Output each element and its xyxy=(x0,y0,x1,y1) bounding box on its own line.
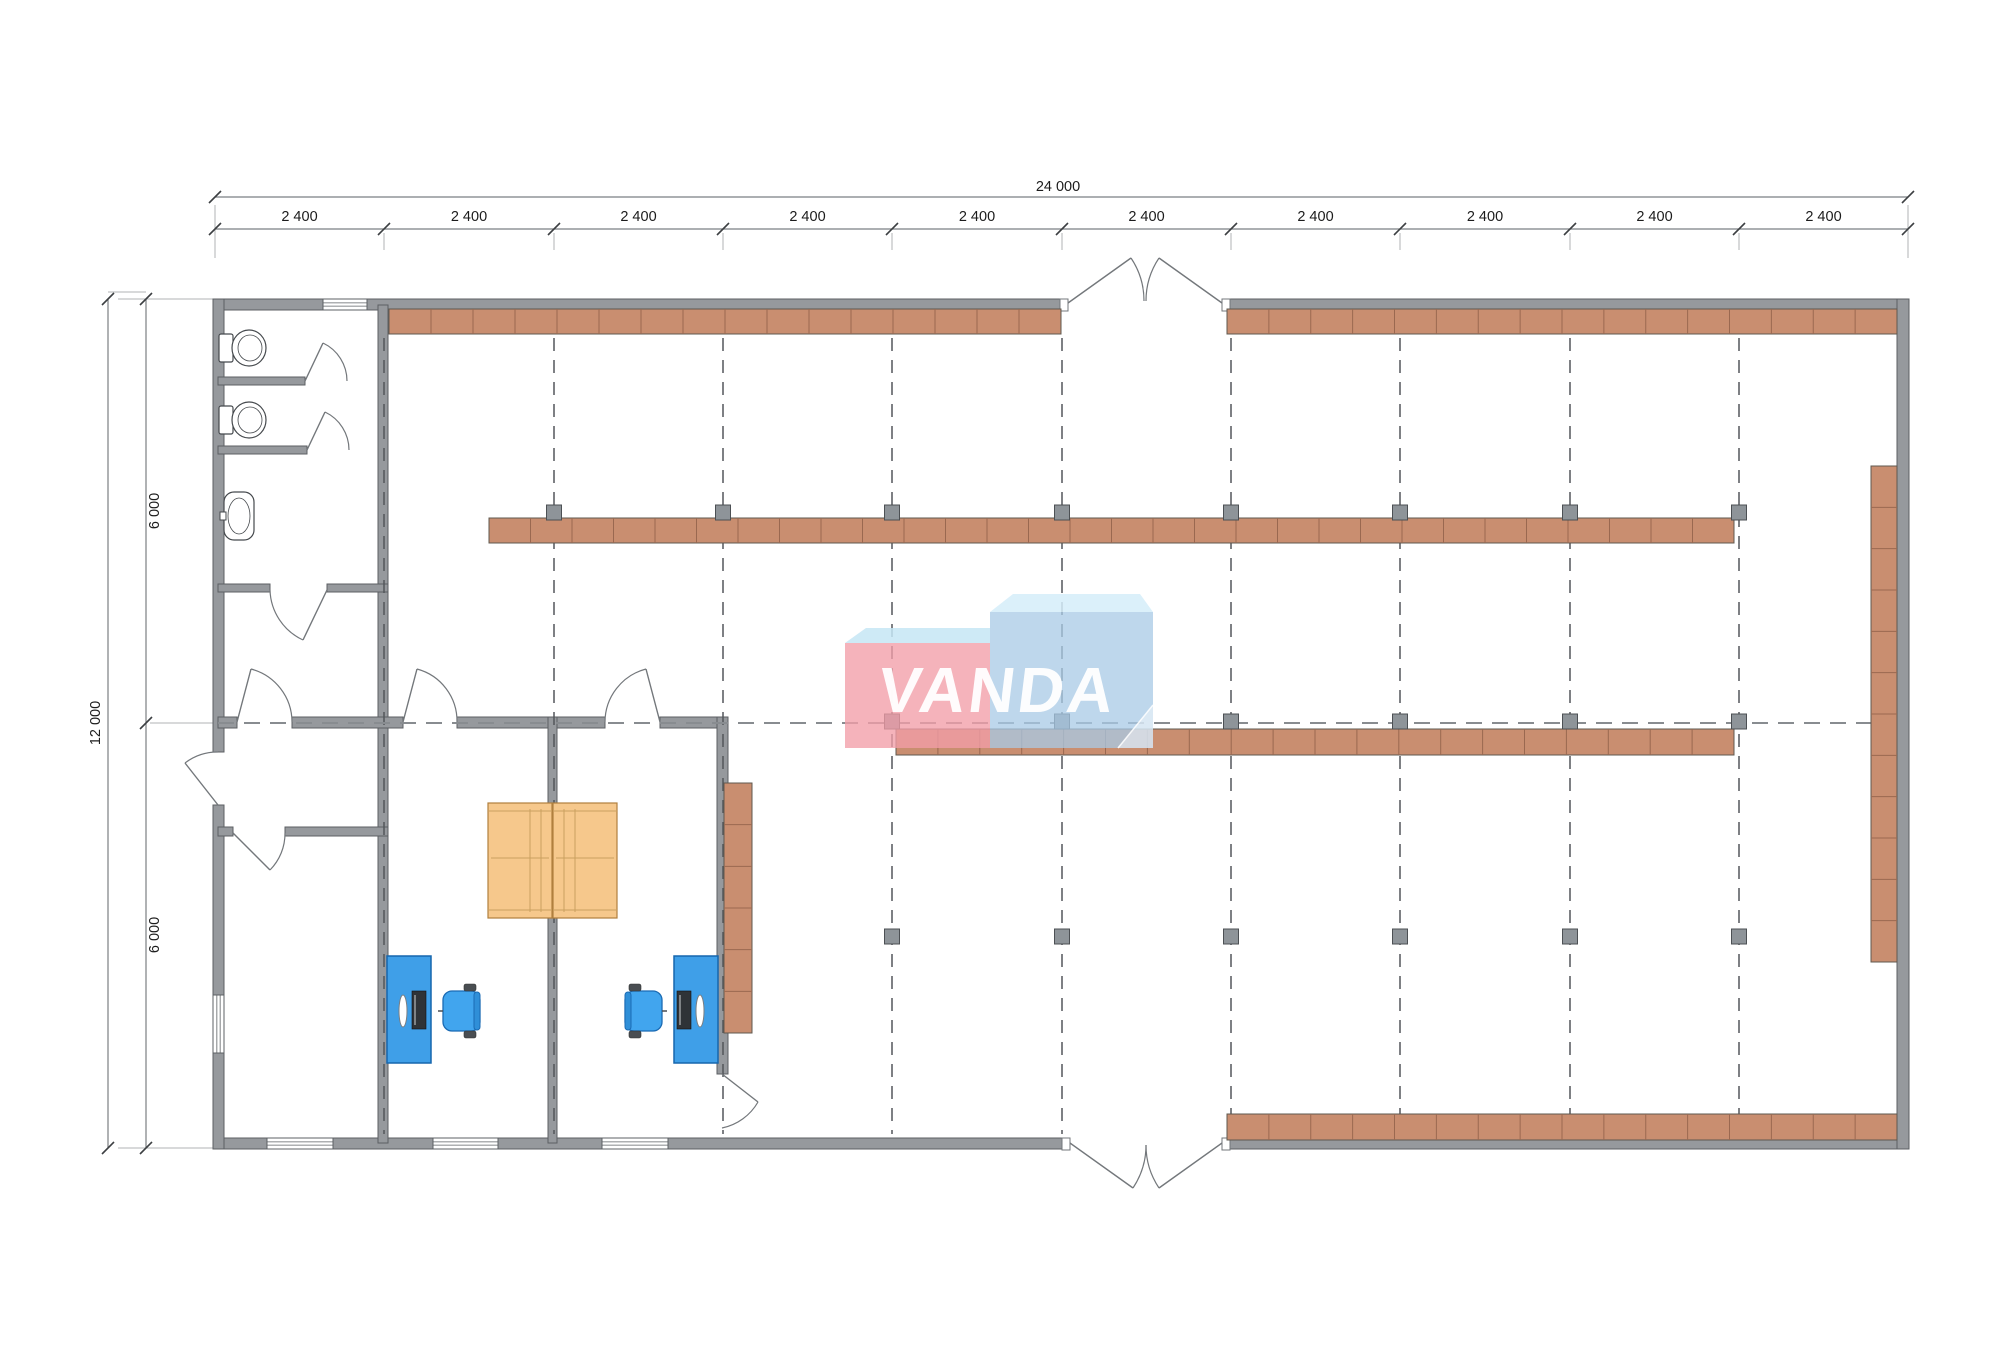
wall xyxy=(327,584,388,592)
dim-label-segment-v: 6 000 xyxy=(147,917,163,953)
column-marker xyxy=(1224,714,1239,729)
wall xyxy=(285,827,388,836)
dim-label-segment: 2 400 xyxy=(1636,209,1672,225)
office-left-door-leaf xyxy=(403,669,417,722)
wall xyxy=(213,805,224,1149)
door-jamb xyxy=(1062,1138,1070,1150)
side-entrance-door-leaf xyxy=(185,763,218,805)
top-entrance-right-swing xyxy=(1146,258,1159,301)
bottom-entrance-right-swing xyxy=(1146,1145,1159,1188)
bottom-entrance-left-swing xyxy=(1133,1145,1146,1188)
bathroom-door-leaf xyxy=(303,590,327,640)
top-entrance-left-leaf xyxy=(1068,258,1131,303)
column-marker xyxy=(1393,929,1408,944)
stall-door-2-swing xyxy=(325,412,349,450)
column-marker xyxy=(1732,929,1747,944)
office-table xyxy=(553,803,617,918)
column-marker xyxy=(1393,505,1408,520)
toilet-tank xyxy=(219,406,233,434)
wall xyxy=(548,717,557,1143)
column-marker xyxy=(1732,505,1747,520)
wall xyxy=(1222,299,1909,310)
office-left-door-swing xyxy=(417,669,457,722)
vestibule-door-swing xyxy=(270,833,285,870)
side-entrance-door-swing xyxy=(185,752,218,763)
dim-label-segment: 2 400 xyxy=(959,209,995,225)
top-entrance-right-leaf xyxy=(1159,258,1222,303)
chair-back xyxy=(474,992,480,1030)
window xyxy=(267,1138,333,1149)
top-entrance-left-swing xyxy=(1131,258,1144,301)
column-marker xyxy=(1224,505,1239,520)
wall xyxy=(218,446,307,454)
stall-door-2-leaf xyxy=(307,412,325,450)
column-marker xyxy=(716,505,731,520)
office-table xyxy=(488,803,552,918)
wall xyxy=(218,827,233,836)
chair-armrest xyxy=(629,984,641,991)
wall xyxy=(218,584,270,592)
dim-label-overall-width: 24 000 xyxy=(1036,179,1080,195)
desktop-computer xyxy=(412,991,426,1029)
office-right-door-swing xyxy=(605,669,646,722)
corridor-door-leaf xyxy=(237,669,251,722)
window xyxy=(433,1138,498,1149)
column-marker xyxy=(1732,714,1747,729)
office-east-door-swing xyxy=(722,1102,758,1128)
logo-layer: VANDA xyxy=(845,594,1153,748)
column-marker xyxy=(1563,929,1578,944)
toilet-tank xyxy=(219,334,233,362)
vanda-logo-text: VANDA xyxy=(874,654,1121,726)
chair-armrest xyxy=(464,984,476,991)
dim-label-segment: 2 400 xyxy=(620,209,656,225)
dim-label-overall-height: 12 000 xyxy=(88,701,104,745)
chair-armrest xyxy=(629,1031,641,1038)
logo-pink-box-top xyxy=(845,628,990,643)
dim-label-segment-v: 6 000 xyxy=(147,493,163,529)
column-marker xyxy=(1055,505,1070,520)
chair-armrest xyxy=(464,1031,476,1038)
chair-back xyxy=(625,992,631,1030)
office-east-door-leaf xyxy=(722,1074,758,1102)
dim-label-segment: 2 400 xyxy=(1805,209,1841,225)
dim-label-segment: 2 400 xyxy=(789,209,825,225)
desktop-computer xyxy=(677,991,691,1029)
window xyxy=(602,1138,668,1149)
column-marker xyxy=(547,505,562,520)
dim-label-segment: 2 400 xyxy=(1128,209,1164,225)
wall xyxy=(1897,299,1909,1149)
column-marker xyxy=(1055,929,1070,944)
dim-label-segment: 2 400 xyxy=(451,209,487,225)
bathroom-door-swing xyxy=(270,590,303,640)
stall-door-1-swing xyxy=(323,343,347,381)
wall xyxy=(218,377,305,385)
wall xyxy=(213,299,224,752)
vestibule-door-leaf xyxy=(233,833,270,870)
window xyxy=(213,995,224,1053)
keyboard xyxy=(399,995,407,1027)
window xyxy=(323,299,367,310)
column-marker xyxy=(885,505,900,520)
corridor-door-swing xyxy=(251,669,292,722)
logo-blue-box-top xyxy=(990,594,1153,612)
dim-label-segment: 2 400 xyxy=(1297,209,1333,225)
bottom-entrance-right-leaf xyxy=(1159,1143,1222,1188)
keyboard xyxy=(696,995,704,1027)
dim-label-segment: 2 400 xyxy=(1467,209,1503,225)
stall-door-1-leaf xyxy=(305,343,323,381)
plan-svg: 24 0002 4002 4002 4002 4002 4002 4002 40… xyxy=(0,0,2000,1358)
office-right-door-leaf xyxy=(646,669,660,722)
sink xyxy=(224,492,254,540)
dim-label-segment: 2 400 xyxy=(281,209,317,225)
bottom-entrance-left-leaf xyxy=(1070,1143,1133,1188)
column-marker xyxy=(1224,929,1239,944)
sink-tap xyxy=(220,512,226,520)
floor-plan: 24 0002 4002 4002 4002 4002 4002 4002 40… xyxy=(0,0,2000,1358)
column-marker xyxy=(885,929,900,944)
column-marker xyxy=(1393,714,1408,729)
column-marker xyxy=(1563,505,1578,520)
furniture-layer xyxy=(219,330,718,1063)
column-marker xyxy=(1563,714,1578,729)
